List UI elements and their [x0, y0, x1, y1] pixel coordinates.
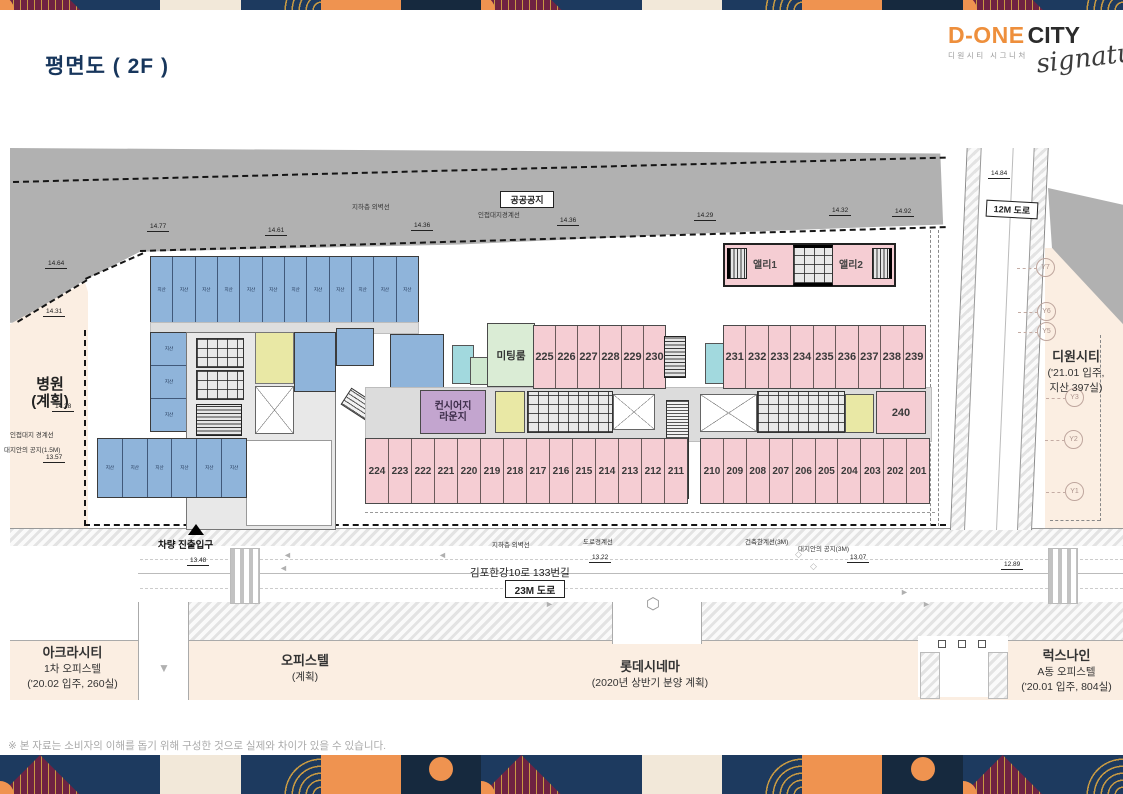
lounge-label-2: 라운지	[439, 412, 467, 423]
brand-logo: D-ONECITY 디원시티 시그니처 signature	[948, 22, 1123, 80]
room-row-231-239: 231232233234235236237238239	[723, 325, 926, 389]
room-row-225-230: 225226227228229230	[533, 325, 666, 389]
room-240: 240	[876, 391, 926, 434]
room-cell: 233	[768, 326, 790, 388]
cyan-room	[705, 343, 724, 384]
deco-tile-cream	[160, 755, 240, 794]
grid-marker-y2: Y2	[1064, 430, 1083, 449]
deco-tile-cream	[160, 0, 240, 10]
road-name-label: 김포한강10로 133번길	[470, 565, 570, 580]
plaza-column	[938, 640, 946, 648]
street-west	[138, 602, 189, 700]
crosswalk-west	[230, 548, 260, 604]
room-cell: 225	[534, 326, 555, 388]
elevator-bank	[757, 391, 845, 433]
grid-marker-y6: Y6	[1037, 302, 1056, 321]
room-cell: 237	[858, 326, 880, 388]
deco-band-top	[0, 0, 1123, 10]
page-title: 평면도 ( 2F )	[45, 50, 169, 80]
room-cell: 210	[701, 439, 723, 503]
blue-unit-cell: 지산	[151, 333, 187, 365]
dim-label: 13.07	[847, 554, 869, 563]
room-cell: 236	[835, 326, 857, 388]
road-23m-label: 23M 도로	[505, 580, 565, 598]
blue-unit-cell: 지산	[217, 257, 239, 323]
room-240-label: 240	[892, 407, 910, 419]
deco-tile-navy	[80, 755, 160, 794]
grid-marker-y5: Y5	[1037, 322, 1056, 341]
blue-room-row-bottom: 지산지산지산지산지산지산	[97, 438, 247, 498]
neighbor-acra-name: 아크라시티	[15, 642, 130, 661]
room-cell: 228	[599, 326, 621, 388]
deco-tile-tri	[0, 0, 80, 10]
blue-unit-cell: 지산	[373, 257, 395, 323]
dim-label: 14.29	[694, 212, 716, 221]
shaft	[613, 394, 655, 430]
deco-band-bottom	[0, 755, 1123, 794]
dim-label: 13.48	[187, 557, 209, 566]
hexagon-planter: ⬡	[646, 600, 660, 609]
site-setback-left-label: 대지안의 공지(1.5M)	[4, 447, 60, 454]
shaft	[700, 394, 757, 432]
elevator-bank	[527, 391, 613, 433]
elevator-bank	[793, 245, 833, 286]
site-boundary-left	[84, 330, 86, 526]
deco-tile-circle	[882, 0, 962, 10]
room-cell: 207	[769, 439, 792, 503]
deco-tile-navy	[80, 0, 160, 10]
room-cell: 221	[434, 439, 457, 503]
lounge-label-1: 컨시어지	[435, 401, 472, 412]
room-cell: 212	[641, 439, 664, 503]
deco-tile-arc	[722, 0, 802, 10]
dim-label: 14.36	[557, 217, 579, 226]
room-row-224-211: 2242232222212202192182172162152142132122…	[365, 438, 688, 504]
room-cell: 220	[457, 439, 480, 503]
deco-tile-orange	[802, 0, 882, 10]
dim-label: 13.22	[589, 554, 611, 563]
deco-tile-tri	[963, 755, 1043, 794]
blue-unit-cell: 지산	[147, 439, 172, 497]
room-cell: 230	[643, 326, 665, 388]
stair-block	[872, 248, 892, 279]
stair-block	[727, 248, 747, 279]
deco-tile-orange	[321, 0, 401, 10]
deco-tile-cream	[642, 755, 722, 794]
vehicle-entrance-label: 차량 진출입구	[158, 537, 213, 551]
blue-unit-cell: 지산	[306, 257, 328, 323]
setback-line-right1	[930, 230, 931, 526]
deco-tile-circle	[401, 0, 481, 10]
blue-unit-cell: 지산	[172, 257, 194, 323]
dim-label: 14.92	[892, 208, 914, 217]
dim-label: 13.57	[43, 454, 65, 463]
room-cell: 232	[745, 326, 767, 388]
intersection-west	[10, 546, 138, 640]
grid-marker-y1: Y1	[1065, 482, 1084, 501]
room-cell: 229	[621, 326, 643, 388]
room-cell: 219	[480, 439, 503, 503]
deco-tile-tri	[0, 755, 80, 794]
blue-unit-cell: 지산	[396, 257, 418, 323]
room-cell: 215	[572, 439, 595, 503]
underground-wall-bottom-label: 지하층 외벽선	[492, 542, 530, 549]
parcel-dash-under-building	[365, 512, 935, 513]
deco-tile-arc	[1043, 755, 1123, 794]
deco-tile-cream	[642, 0, 722, 10]
room-cell: 214	[595, 439, 618, 503]
neighbor-acra: 아크라시티 1차 오피스텔 ('20.02 입주, 260실)	[15, 642, 130, 691]
deco-tile-arc	[1043, 0, 1123, 10]
dim-label: 14.77	[147, 223, 169, 232]
room-cell: 211	[664, 439, 687, 503]
lane-arrow-left: ◄	[283, 551, 292, 560]
crosswalk-east	[1048, 548, 1078, 604]
room-cell: 224	[366, 439, 388, 503]
room-cell: 216	[549, 439, 572, 503]
blue-room-row-top: 지산지산지산지산지산지산지산지산지산지산지산지산	[150, 256, 419, 324]
room-cell: 218	[503, 439, 526, 503]
lane-arrow-right: ►	[545, 600, 554, 609]
deco-tile-orange	[802, 755, 882, 794]
core-room	[246, 440, 332, 526]
underground-wall-label: 지하층 외벽선	[352, 204, 390, 211]
room-cell: 223	[388, 439, 411, 503]
neighbor-luxnine: 럭스나인 A동 오피스텔 ('20.01 입주, 804실)	[1014, 645, 1119, 694]
deco-tile-arc	[241, 755, 321, 794]
deco-tile-circle	[401, 755, 481, 794]
room-cell: 239	[903, 326, 925, 388]
concierge-lounge: 컨시어지 라운지	[420, 390, 486, 434]
blue-unit-cell: 지산	[122, 439, 147, 497]
neighbor-officetel-name: 오피스텔	[250, 650, 360, 669]
room-cell: 208	[746, 439, 769, 503]
deco-tile-tri	[963, 0, 1043, 10]
dim-label: 14.61	[265, 227, 287, 236]
meeting-room: 미팅룸	[487, 323, 535, 387]
room-cell: 201	[906, 439, 929, 503]
core-room-yellow	[255, 332, 294, 384]
room-cell: 206	[792, 439, 815, 503]
blue-unit-cell: 지산	[329, 257, 351, 323]
deco-tile-tri	[481, 0, 561, 10]
alley2-label: 앨리2	[839, 256, 863, 271]
room-cell: 234	[790, 326, 812, 388]
room-cell: 203	[860, 439, 883, 503]
plaza-pillar	[988, 652, 1008, 699]
blue-unit-cell: 지산	[221, 439, 246, 497]
neighbor-lotte-name: 롯데시네마	[555, 656, 745, 675]
dim-label: 14.28	[52, 403, 74, 412]
lane-line	[10, 559, 1123, 560]
lane-arrow-left: ◄	[279, 564, 288, 573]
road-12m-label: 12M 도로	[986, 200, 1039, 220]
plaza-column	[958, 640, 966, 648]
blue-unit-cell: 지산	[196, 439, 221, 497]
room-cell: 222	[411, 439, 434, 503]
lane-arrow-right: ►	[922, 600, 931, 609]
core-room-yellow	[495, 391, 525, 433]
blue-unit-cell: 지산	[239, 257, 261, 323]
grid-marker-y7: Y7	[1036, 258, 1055, 277]
shaft	[255, 386, 294, 434]
blue-unit-cell: 지산	[195, 257, 217, 323]
room-row-210-201: 210209208207206205204203202201	[700, 438, 930, 504]
dim-label: 14.31	[43, 308, 65, 317]
deco-tile-navy	[562, 0, 642, 10]
dim-label: 14.64	[45, 260, 67, 269]
road-boundary-label: 도로경계선	[583, 539, 613, 546]
alley1-label: 앨리1	[753, 256, 777, 271]
blue-unit-cell: 지산	[151, 257, 172, 323]
room-cell: 226	[555, 326, 577, 388]
deco-tile-arc	[722, 755, 802, 794]
deco-tile-circle	[882, 755, 962, 794]
slide: 평면도 ( 2F ) D-ONECITY 디원시티 시그니처 signature…	[0, 0, 1123, 794]
lane-diamond: ◇	[810, 562, 817, 571]
site-setback-right-label: 대지안의 공지(3M)	[798, 546, 849, 553]
disclaimer-note: ※ 본 자료는 소비자의 이해를 돕기 위해 구성한 것으로 실제와 차이가 있…	[8, 738, 386, 753]
neighbor-dione: 디원시티 ('21.01 입주, 지산 397실)	[1030, 346, 1122, 395]
deco-tile-tri	[481, 755, 561, 794]
adjacent-boundary-left-label: 인접대지 경계선	[10, 432, 54, 439]
dim-label: 14.32	[829, 207, 851, 216]
meeting-room-label: 미팅룸	[497, 348, 526, 363]
dim-label: 14.84	[988, 170, 1010, 179]
room-cell: 227	[577, 326, 599, 388]
dim-label: 14.36	[411, 222, 433, 231]
blue-room	[294, 332, 336, 392]
blue-unit-cell: 지산	[171, 439, 196, 497]
stair-block	[664, 336, 686, 378]
road-12m-verge-west	[951, 148, 982, 530]
lane-arrow-left: ◄	[438, 551, 447, 560]
setback-line-right2	[938, 230, 939, 526]
blue-unit-cell: 지산	[151, 398, 187, 431]
blue-unit-cell: 지산	[284, 257, 306, 323]
room-cell: 238	[880, 326, 902, 388]
room-cell: 205	[815, 439, 838, 503]
blue-unit-cell: 지산	[351, 257, 373, 323]
room-cell: 231	[724, 326, 745, 388]
blue-unit-cell: 지산	[98, 439, 122, 497]
room-cell: 204	[837, 439, 860, 503]
public-space-label: 공공공지	[500, 191, 554, 208]
elevator-bank	[196, 370, 244, 400]
street-arrow: ▼	[158, 664, 170, 673]
plaza-pillar	[920, 652, 940, 699]
adjacent-boundary-label: 인접대지경계선	[478, 212, 520, 219]
alley-annex: 앨리1 앨리2	[723, 243, 896, 287]
room-cell: 202	[883, 439, 906, 503]
room-cell: 217	[526, 439, 549, 503]
room-cell: 209	[723, 439, 746, 503]
blue-room	[336, 328, 374, 366]
room-cell: 235	[813, 326, 835, 388]
blue-unit-cell: 지산	[151, 365, 187, 398]
vehicle-entrance-arrow-icon	[188, 524, 204, 535]
deco-tile-orange	[321, 755, 401, 794]
dim-label: 12.89	[1001, 561, 1023, 570]
neighbor-luxnine-name: 럭스나인	[1014, 645, 1119, 664]
lane-line	[10, 588, 1123, 589]
lane-arrow-right: ►	[900, 588, 909, 597]
stair-block	[196, 404, 242, 436]
neighbor-officetel: 오피스텔 (계획)	[250, 650, 360, 684]
blue-room-stack-left: 지산지산지산	[150, 332, 188, 432]
neighbor-dione-name: 디원시티	[1030, 346, 1122, 365]
plaza-column	[978, 640, 986, 648]
brand-done: D-ONE	[948, 22, 1025, 48]
parcel-dash-right-h	[1050, 520, 1100, 521]
building-limit-label: 건축한계선(3M)	[745, 539, 788, 546]
neighbor-lotte: 롯데시네마 (2020년 상반기 분양 계획)	[555, 656, 745, 690]
blue-unit-cell: 지산	[262, 257, 284, 323]
deco-tile-arc	[241, 0, 321, 10]
room-cell: 213	[618, 439, 641, 503]
core-room-yellow	[845, 394, 874, 433]
deco-tile-navy	[562, 755, 642, 794]
elevator-bank	[196, 338, 244, 368]
